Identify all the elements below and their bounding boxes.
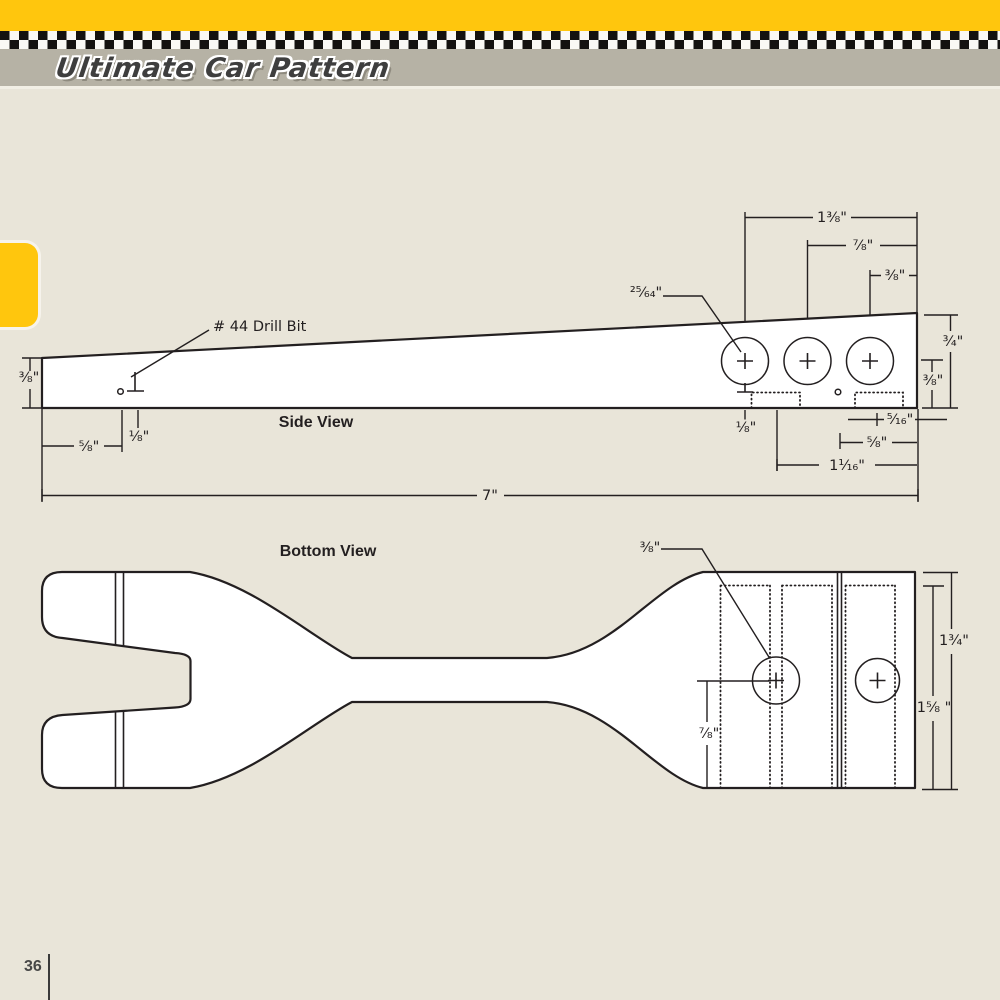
dim-label: ⅝" (867, 435, 888, 451)
dim-label: 1⅝ " (917, 700, 952, 716)
dim-top-span-wide: 1⅜" (745, 210, 917, 226)
dim-label: ⅜" (640, 540, 661, 556)
page-number: 36 (24, 958, 42, 976)
dim-right-lower-height: ⅜" (921, 360, 943, 408)
dim-label: 1¹⁄₁₆" (829, 458, 865, 474)
book-page: Ultimate Car Pattern 1⅜" (0, 0, 1000, 1000)
dim-rear-span: 1¹⁄₁₆" (777, 458, 917, 474)
dim-front-hole-inset: ⅝" (42, 439, 122, 455)
dim-left-height: ⅜" (19, 358, 43, 408)
dim-right-height: ¾" (922, 315, 963, 408)
dim-label: ⅛" (129, 429, 150, 445)
bottom-view: ⅜" ⅞" 1¾" 1⅝ " Bottom View (42, 540, 969, 790)
dim-label: ¾" (943, 334, 964, 350)
drill-bit-label: # 44 Drill Bit (213, 319, 307, 335)
dim-rear-drill-depth: ⅛" (736, 420, 757, 436)
bottom-view-title: Bottom View (280, 543, 377, 560)
dim-label: 1⅜" (817, 210, 847, 226)
dim-label: ⅜" (885, 268, 906, 284)
dim-label: ⅛" (736, 420, 757, 436)
dim-label: 1¾" (939, 633, 969, 649)
dim-label: ⅞" (853, 238, 874, 254)
bottom-view-outline (42, 572, 915, 788)
dim-top-span-mid: ⅞" (808, 238, 918, 254)
dim-overall-width: 1¾" (922, 573, 969, 790)
side-view-title: Side View (279, 414, 354, 431)
dim-label: ⅝" (79, 439, 100, 455)
dim-label: ⅜" (19, 370, 40, 386)
dim-inner-width: 1⅝ " (917, 586, 952, 789)
dim-rear-hole-inset: ⅝" (840, 435, 917, 451)
dim-overall-length: 7" (42, 488, 918, 504)
hole-diameter-label: ²⁵⁄₆₄" (630, 285, 662, 301)
dim-front-drill-depth: ⅛" (129, 429, 150, 445)
dim-label: ⅞" (699, 726, 720, 742)
side-bottom-extension-lines (42, 409, 918, 501)
dim-label: ⅜" (923, 373, 944, 389)
pattern-drawing: 1⅜" ⅞" ⅜" ²⁵⁄₆₄" # 44 Drill Bit (0, 0, 1000, 1000)
side-view: 1⅜" ⅞" ⅜" ²⁵⁄₆₄" # 44 Drill Bit (19, 210, 964, 504)
page-number-divider (48, 954, 50, 1000)
side-view-outline (42, 313, 917, 408)
dim-top-span-small: ⅜" (870, 268, 917, 284)
dim-label: 7" (482, 488, 498, 504)
dim-rear-slot-inset: ⁵⁄₁₆" (848, 412, 947, 428)
dim-label: ⁵⁄₁₆" (887, 412, 914, 428)
side-top-extension-lines (745, 212, 917, 321)
